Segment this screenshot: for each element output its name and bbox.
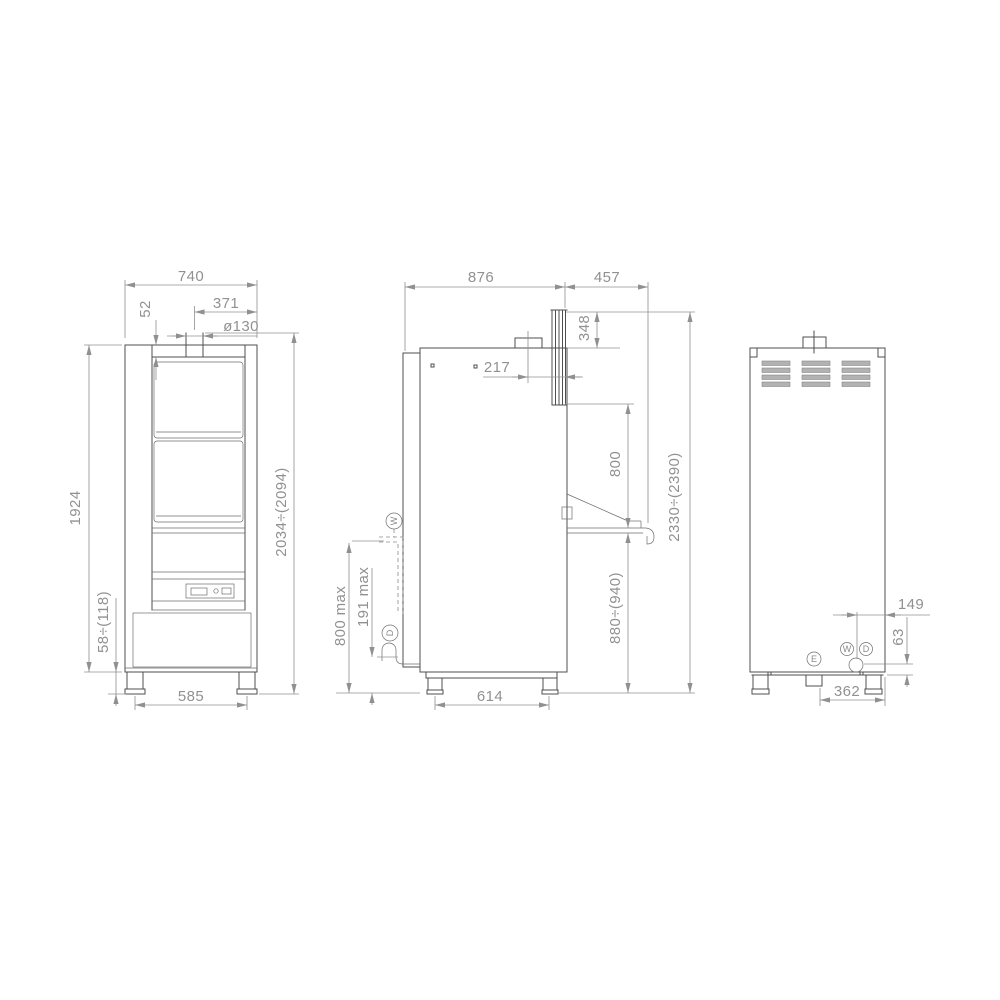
water-connection-label: W [389, 516, 399, 525]
rear-water-connection-label: W [843, 644, 852, 654]
dim-side-opening-height: 800 [607, 451, 624, 477]
front-view: 740 371 ø130 52 1924 58÷(118) 585 2034÷(… [67, 268, 299, 710]
front-body-outline [125, 333, 257, 672]
dim-front-foot-spacing: 585 [178, 688, 204, 705]
dim-front-top-clearance: 52 [137, 300, 154, 318]
electric-connection-label: E [811, 654, 817, 664]
dim-side-foot-spacing: 614 [477, 688, 503, 705]
front-doors [125, 362, 257, 668]
rear-base-feet [752, 672, 883, 694]
louver-group-center [802, 361, 830, 387]
dim-side-drain-outlet-max: 191 max [355, 567, 372, 627]
technical-drawing-page: 740 371 ø130 52 1924 58÷(118) 585 2034÷(… [0, 0, 1000, 1000]
drain-outlet-circle [849, 658, 863, 672]
side-body-outline [403, 338, 567, 672]
dim-rear-drain-height: 63 [890, 628, 907, 646]
side-hood [551, 310, 567, 405]
drain-connection-label: D [385, 629, 395, 636]
dim-front-body-height: 1924 [67, 491, 84, 526]
rear-connections: E W D [807, 643, 873, 673]
louver-group-left [762, 361, 790, 387]
dim-front-overall-height: 2034÷(2094) [273, 467, 290, 556]
dim-side-table-overhang: 457 [594, 269, 620, 286]
dim-side-water-inlet-max: 800 max [332, 586, 349, 646]
dim-front-overall-width: 740 [178, 268, 204, 285]
rear-louvers [762, 361, 870, 387]
side-table [562, 494, 654, 544]
water-hose-dashed [379, 529, 403, 614]
dim-rear-drain-offset: 149 [898, 596, 924, 613]
dim-side-working-height: 880÷(940) [607, 572, 624, 644]
front-control-panel [186, 584, 234, 598]
dim-front-exhaust-diameter: ø130 [223, 318, 259, 335]
drain-trap [382, 643, 420, 664]
louver-group-right [842, 361, 870, 387]
dim-side-exhaust-offset: 217 [484, 359, 510, 376]
dim-rear-connection-span: 362 [834, 683, 860, 700]
dim-side-hood-travel: 348 [576, 315, 593, 341]
rear-drain-connection-label: D [863, 644, 870, 654]
dim-front-plinth-height: 58÷(118) [95, 591, 112, 653]
dim-front-exhaust-offset: 371 [213, 295, 239, 312]
side-water-drain: W D [379, 513, 420, 664]
dim-side-overall-depth: 876 [468, 269, 494, 286]
side-view: W D [332, 269, 695, 710]
dim-side-overall-height-open: 2330÷(2390) [666, 452, 683, 541]
technical-drawing: 740 371 ø130 52 1924 58÷(118) 585 2034÷(… [0, 0, 1000, 1000]
rear-view: E W D 149 63 362 [750, 331, 930, 706]
